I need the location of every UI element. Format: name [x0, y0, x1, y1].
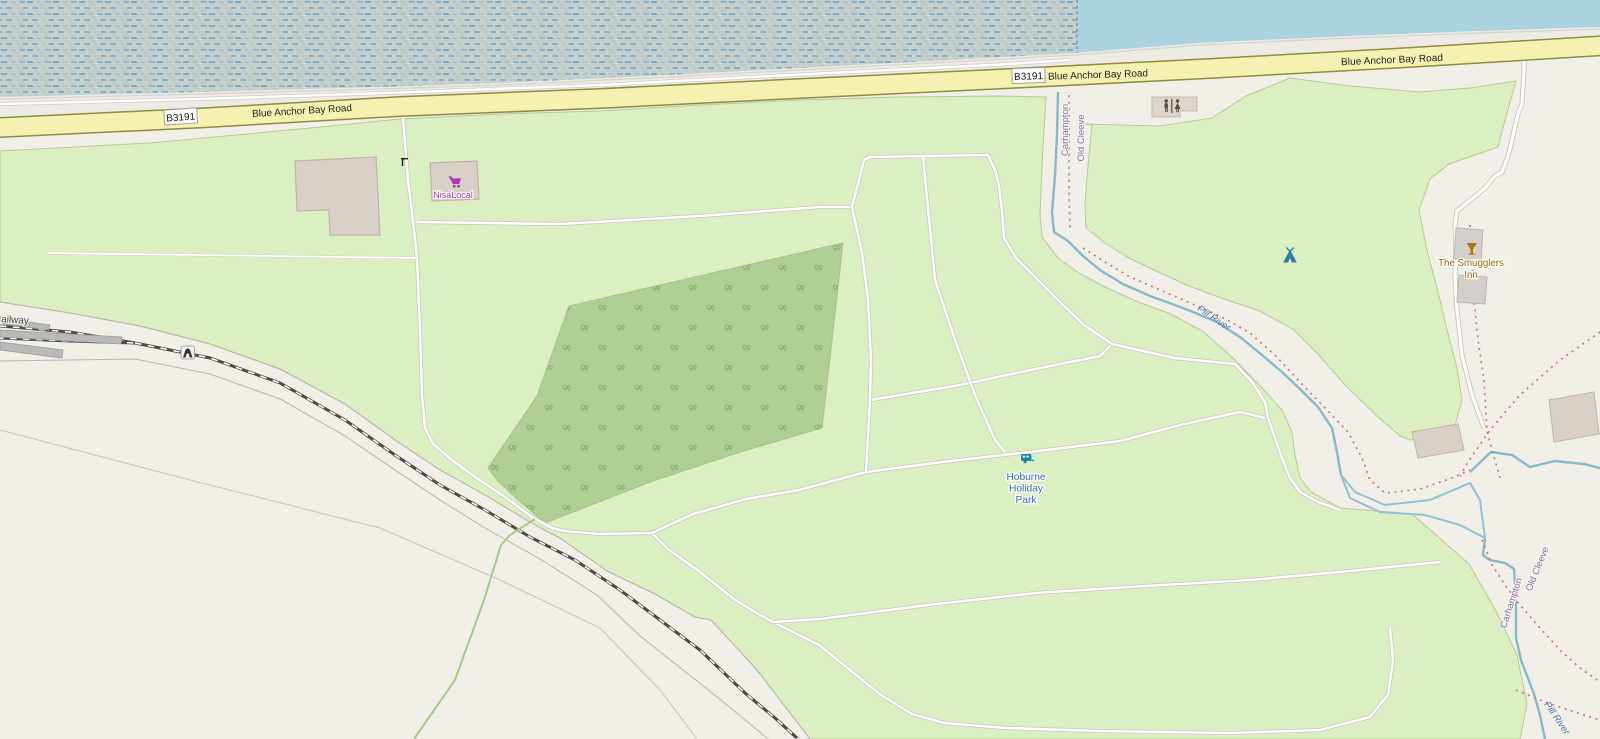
svg-text:Old Cleeve: Old Cleeve — [1076, 115, 1087, 162]
svg-text:B3191: B3191 — [166, 112, 196, 125]
svg-text:Hoburne: Hoburne — [1006, 472, 1045, 483]
svg-text:NisaLocal: NisaLocal — [433, 190, 473, 200]
svg-text:Inn: Inn — [1464, 270, 1477, 281]
svg-text:Park: Park — [1016, 495, 1038, 506]
svg-text:The Smugglers: The Smugglers — [1438, 258, 1504, 269]
svg-text:Holiday: Holiday — [1009, 484, 1044, 495]
svg-text:B3191: B3191 — [1014, 71, 1044, 83]
svg-text:Carhampton: Carhampton — [1060, 104, 1071, 156]
svg-text:Railway: Railway — [0, 314, 29, 327]
